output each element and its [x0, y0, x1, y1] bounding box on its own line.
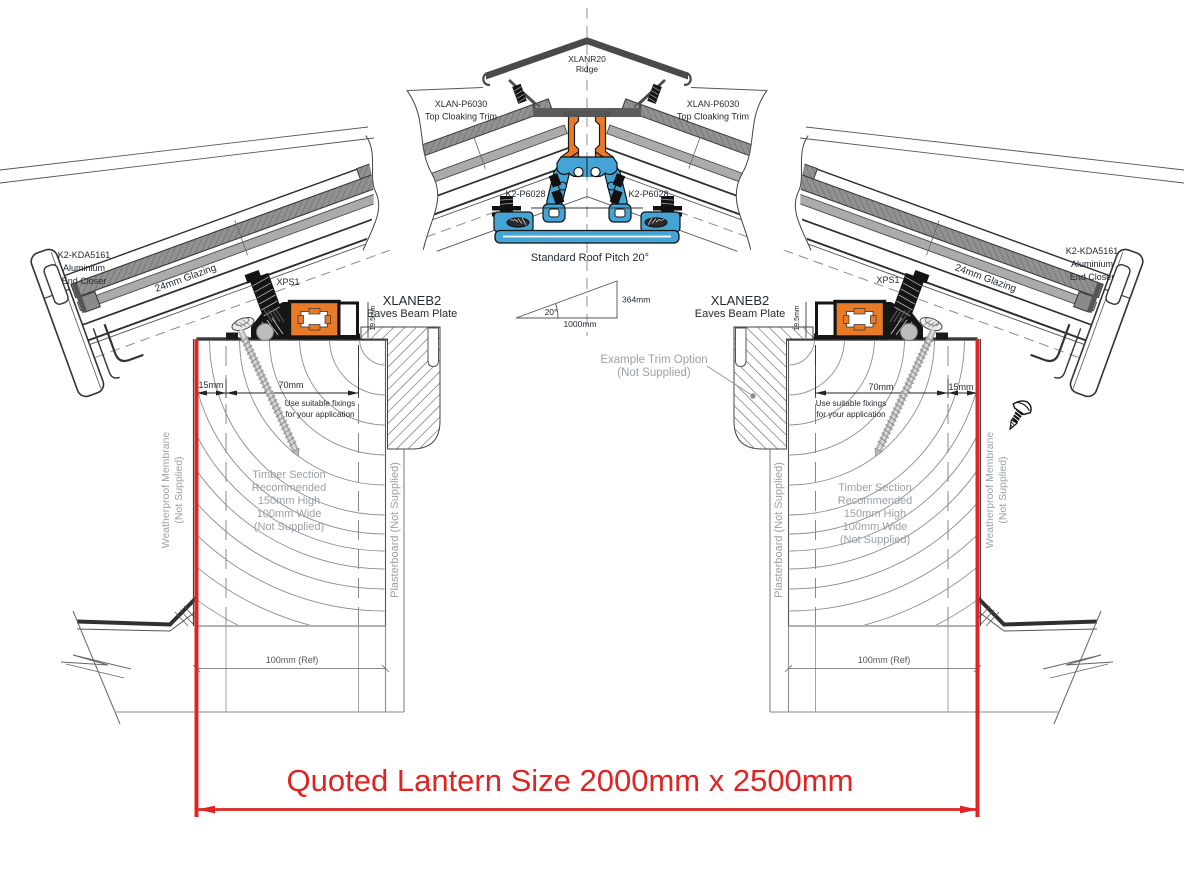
svg-text:Top Cloaking Trim: Top Cloaking Trim [425, 112, 497, 122]
svg-text:(Not Supplied): (Not Supplied) [254, 521, 324, 533]
svg-text:K2-P6028: K2-P6028 [628, 189, 668, 199]
svg-text:Timber Section: Timber Section [838, 482, 912, 494]
svg-text:Top Cloaking Trim: Top Cloaking Trim [677, 112, 749, 122]
svg-text:15mm: 15mm [948, 382, 973, 392]
svg-text:150mm High: 150mm High [258, 495, 320, 507]
svg-text:Use suitable fixings: Use suitable fixings [816, 399, 887, 408]
svg-text:Plasterboard (Not Supplied): Plasterboard (Not Supplied) [773, 462, 785, 598]
svg-text:Aluminium: Aluminium [1071, 259, 1113, 269]
svg-text:K2-KDA5161: K2-KDA5161 [58, 250, 111, 260]
svg-text:100mm Wide: 100mm Wide [843, 521, 908, 533]
svg-text:100mm (Ref): 100mm (Ref) [266, 655, 319, 665]
svg-text:for your application: for your application [285, 410, 355, 419]
svg-text:100mm Wide: 100mm Wide [257, 508, 322, 520]
svg-text:Eaves Beam Plate: Eaves Beam Plate [367, 308, 458, 320]
svg-text:Timber Section: Timber Section [252, 469, 326, 481]
svg-text:Weatherproof Membrane: Weatherproof Membrane [984, 432, 996, 549]
svg-text:(Not Supplied): (Not Supplied) [173, 456, 185, 523]
svg-text:XLAN-P6030: XLAN-P6030 [435, 99, 488, 109]
svg-text:End Closer: End Closer [62, 276, 107, 286]
svg-text:100mm (Ref): 100mm (Ref) [858, 655, 911, 665]
svg-text:15mm: 15mm [198, 380, 223, 390]
svg-text:Weatherproof Membrane: Weatherproof Membrane [160, 432, 172, 549]
svg-text:Example Trim Option: Example Trim Option [600, 354, 707, 366]
svg-text:End Closer: End Closer [1070, 272, 1115, 282]
svg-text:1000mm: 1000mm [563, 319, 596, 329]
svg-text:XLAN-P6030: XLAN-P6030 [687, 99, 740, 109]
svg-text:Use suitable fixings: Use suitable fixings [285, 399, 356, 408]
svg-text:(Not Supplied): (Not Supplied) [840, 534, 910, 546]
svg-text:XLANEB2: XLANEB2 [383, 293, 442, 308]
svg-text:XPS1: XPS1 [276, 277, 299, 287]
svg-text:Plasterboard (Not Supplied): Plasterboard (Not Supplied) [389, 462, 401, 598]
svg-text:Quoted Lantern Size 2000mm x 2: Quoted Lantern Size 2000mm x 2500mm [287, 763, 854, 798]
svg-text:Aluminium: Aluminium [63, 263, 105, 273]
svg-text:Eaves Beam Plate: Eaves Beam Plate [695, 308, 786, 320]
svg-text:Recommended: Recommended [838, 495, 913, 507]
svg-text:Recommended: Recommended [252, 482, 327, 494]
svg-text:19.5mm: 19.5mm [370, 305, 377, 330]
svg-text:XPS1: XPS1 [876, 275, 899, 285]
svg-text:XLANEB2: XLANEB2 [711, 293, 770, 308]
svg-text:364mm: 364mm [622, 295, 650, 305]
svg-text:70mm: 70mm [868, 382, 893, 392]
svg-text:20°: 20° [545, 307, 558, 317]
svg-text:(Not Supplied): (Not Supplied) [617, 367, 691, 379]
svg-text:(Not Supplied): (Not Supplied) [997, 456, 1009, 523]
svg-text:70mm: 70mm [278, 380, 303, 390]
svg-text:XLANR20: XLANR20 [568, 54, 606, 64]
svg-text:for your application: for your application [816, 410, 886, 419]
svg-text:150mm High: 150mm High [844, 508, 906, 520]
svg-text:K2-P6028: K2-P6028 [505, 189, 545, 199]
svg-text:Standard Roof Pitch 20°: Standard Roof Pitch 20° [531, 252, 649, 264]
svg-text:K2-KDA5161: K2-KDA5161 [1066, 246, 1119, 256]
svg-text:Ridge: Ridge [576, 64, 598, 74]
svg-text:19.5mm: 19.5mm [794, 305, 801, 330]
